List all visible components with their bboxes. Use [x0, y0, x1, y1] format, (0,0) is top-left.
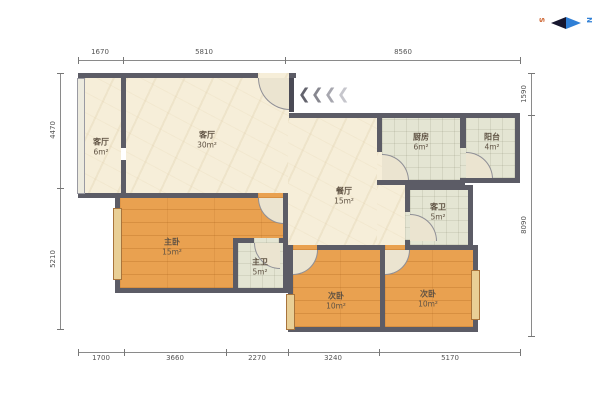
compass-south-label: S	[538, 17, 546, 22]
dimension-tick	[520, 349, 521, 356]
dim-label: 8090	[520, 216, 528, 234]
dimension-tick	[528, 73, 535, 74]
wall	[409, 245, 478, 250]
dimension-tick	[123, 57, 124, 64]
room-label-master-bedroom: 主卧 15m²	[162, 237, 182, 256]
wall	[468, 185, 473, 250]
room-name: 客厅	[197, 130, 217, 140]
dim-label: 8560	[394, 48, 412, 56]
dim-label: 5210	[49, 250, 57, 268]
dim-label: 5810	[195, 48, 213, 56]
entrance-arrow-icon: ❮	[298, 87, 311, 102]
room-area: 5m²	[252, 267, 268, 276]
entrance-arrow-icon: ❮	[311, 87, 324, 102]
dim-label: 3240	[324, 354, 342, 362]
wall	[288, 327, 478, 332]
dimension-tick	[78, 349, 79, 356]
dim-label: 3660	[166, 354, 184, 362]
room-name: 厨房	[413, 132, 429, 142]
dim-label: 1590	[520, 85, 528, 103]
dimension-tick	[57, 188, 64, 189]
dimension-tick	[124, 349, 125, 356]
wall	[515, 113, 520, 183]
compass-needle-west-icon	[551, 17, 566, 29]
room-area: 6m²	[93, 147, 109, 156]
room-name: 主卫	[252, 257, 268, 267]
dimension-tick	[285, 57, 286, 64]
room-area: 30m²	[197, 140, 217, 149]
window	[471, 270, 480, 320]
dimension-tick	[288, 349, 289, 356]
wall	[380, 250, 385, 327]
room-name: 阳台	[484, 132, 500, 142]
room-floor-dining	[288, 118, 377, 245]
dimension-line	[531, 73, 532, 337]
room-area: 4m²	[484, 142, 500, 151]
dim-label: 4470	[49, 121, 57, 139]
compass-north-label: N	[585, 17, 593, 23]
dimension-line	[78, 60, 521, 61]
room-label-bedroom2: 次卧 10m²	[326, 291, 346, 310]
room-name: 次卧	[326, 291, 346, 301]
room-label-living: 客厅 30m²	[197, 130, 217, 149]
wall	[121, 160, 126, 194]
dimension-tick	[379, 349, 380, 356]
wall	[115, 193, 258, 198]
room-area: 15m²	[162, 247, 182, 256]
room-floor-hall-small	[84, 78, 121, 194]
window	[113, 208, 122, 280]
wall	[121, 78, 126, 148]
room-label-dining: 餐厅 15m²	[334, 186, 354, 205]
wall	[405, 185, 473, 190]
room-name: 客厅	[93, 137, 109, 147]
dimension-line	[60, 73, 61, 330]
room-label-kitchen: 厨房 6m²	[413, 132, 429, 151]
dimension-line	[78, 352, 521, 353]
window	[77, 78, 85, 194]
dimension-tick	[57, 329, 64, 330]
entrance-arrow-icon: ❮	[337, 87, 350, 102]
room-label-master-bath: 主卫 5m²	[252, 257, 268, 276]
wall	[78, 73, 258, 78]
room-label-guest-bath: 客卫 5m²	[430, 202, 446, 221]
dim-label: 1700	[92, 354, 110, 362]
dimension-tick	[528, 336, 535, 337]
compass-icon: S N	[537, 12, 595, 34]
dimension-tick	[78, 57, 79, 64]
dimension-tick	[57, 73, 64, 74]
room-area: 10m²	[418, 299, 438, 308]
wall	[377, 113, 382, 152]
room-name: 主卧	[162, 237, 182, 247]
room-area: 6m²	[413, 142, 429, 151]
room-label-hall-small: 客厅 6m²	[93, 137, 109, 156]
wall	[115, 288, 293, 293]
dim-label: 1670	[91, 48, 109, 56]
dimension-tick	[528, 115, 535, 116]
entrance-door-leaf	[289, 78, 294, 112]
entrance-arrow-icon: ❮	[324, 87, 337, 102]
dimension-tick	[520, 57, 521, 64]
room-name: 餐厅	[334, 186, 354, 196]
wall	[279, 238, 288, 243]
window	[286, 294, 295, 330]
wall	[317, 245, 385, 250]
room-area: 15m²	[334, 196, 354, 205]
dimension-tick	[226, 349, 227, 356]
dim-label: 5170	[441, 354, 459, 362]
room-area: 5m²	[430, 212, 446, 221]
wall	[289, 113, 520, 118]
wall	[405, 185, 410, 212]
wall	[460, 178, 520, 183]
room-name: 次卧	[418, 289, 438, 299]
wall	[233, 238, 238, 292]
floor-plan-canvas: ❮ ❮ ❮ ❮ 客厅 6m² 客厅 30m² 餐厅 15m² 厨房 6m² 阳台…	[0, 0, 600, 413]
dim-label: 2270	[248, 354, 266, 362]
room-label-bedroom3: 次卧 10m²	[418, 289, 438, 308]
room-area: 10m²	[326, 301, 346, 310]
room-name: 客卫	[430, 202, 446, 212]
wall	[233, 238, 254, 243]
compass-needle-east-icon	[566, 17, 581, 29]
wall	[460, 113, 466, 148]
room-label-balcony: 阳台 4m²	[484, 132, 500, 151]
room-floor-dining-nook2	[377, 185, 405, 245]
